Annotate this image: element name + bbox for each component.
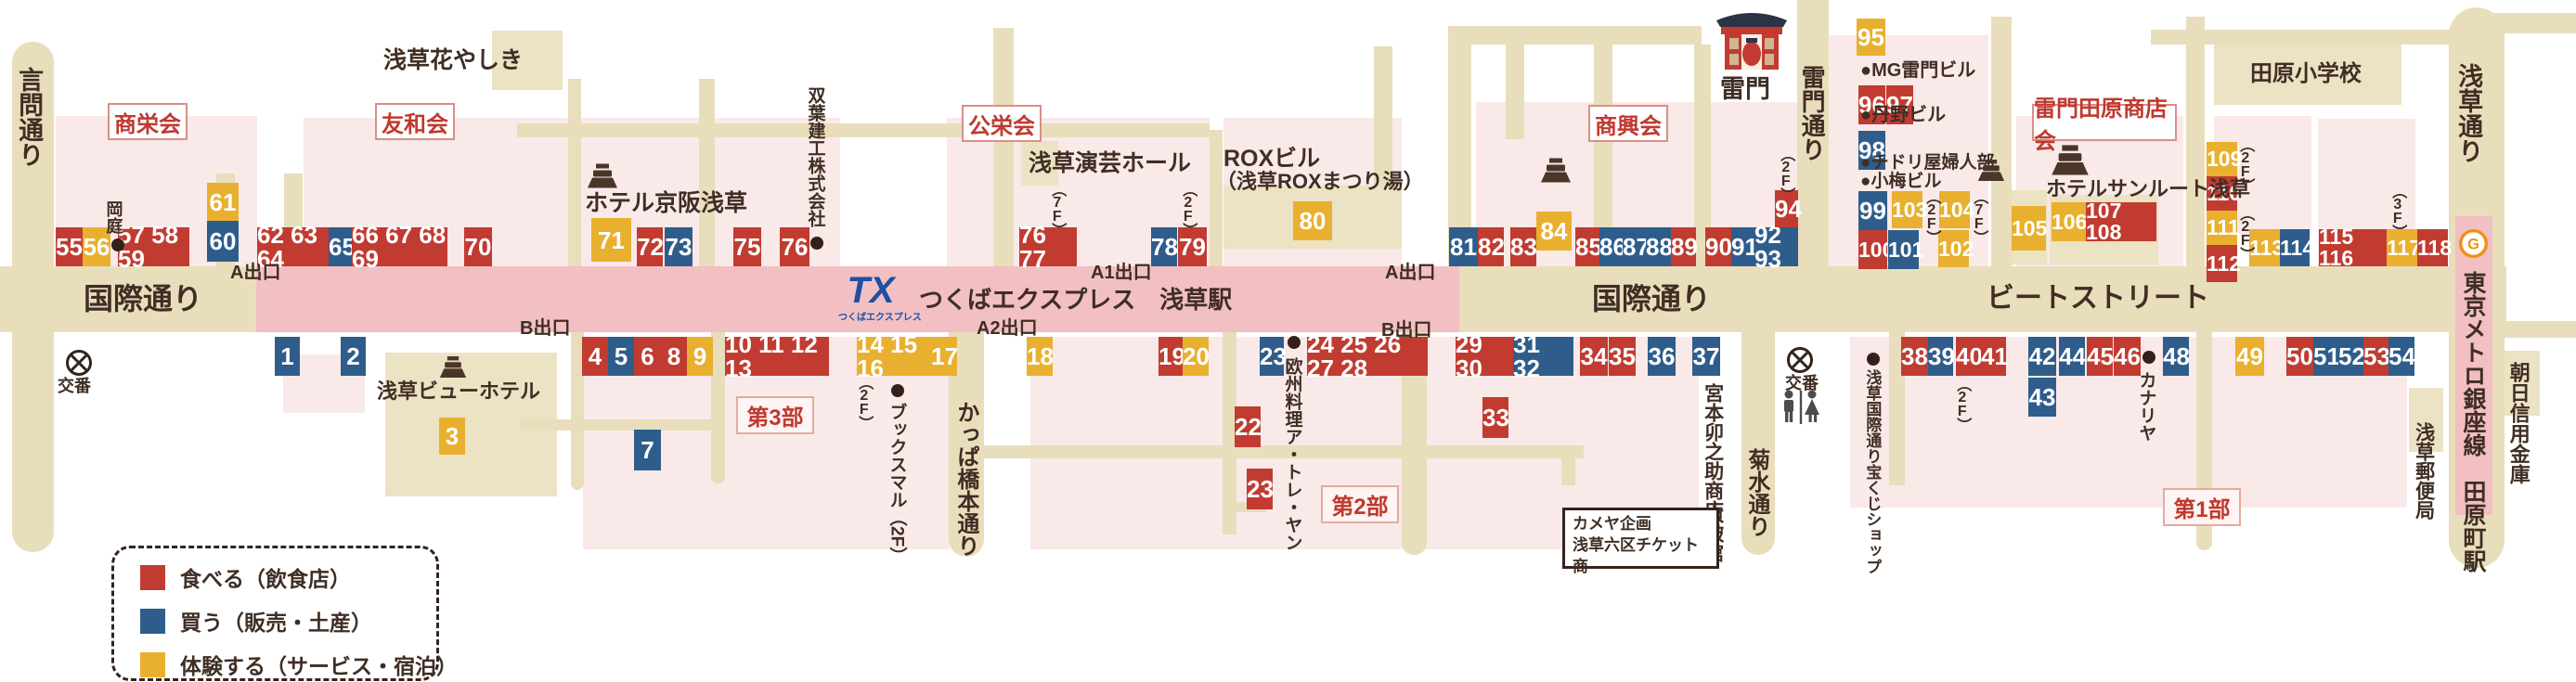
floor-note-7f: （7F） [1971, 189, 1987, 243]
legend-label-buy: 買う（販売・土産） [180, 605, 372, 637]
shop-number-chip: 83 [1510, 227, 1536, 266]
shop-number-chip: 99 [1858, 191, 1887, 230]
location-dot [891, 384, 904, 397]
shop-number-chip: 95 [1857, 19, 1885, 56]
shop-number-chip: 92 93 [1754, 227, 1798, 266]
floor-note-2f: （2F） [2237, 137, 2253, 191]
shop-number-chip: 61 [207, 183, 239, 221]
note-books-maru: ブックスマル（2F） [887, 403, 906, 564]
shop-number-chip: 55 [56, 227, 83, 266]
shop-number-chip: 1 [275, 337, 300, 376]
shop-number-chip: 48 [2163, 337, 2189, 376]
road [2497, 321, 2576, 338]
shop-number-chip: 109 [2207, 142, 2237, 176]
shop-number-chip: 101 [1888, 230, 1919, 269]
rox-building: ROXビル [1223, 147, 1320, 172]
shop-number-chip: 54 [2388, 337, 2414, 376]
road [699, 79, 715, 267]
location-dot [1288, 336, 1301, 349]
shop-number-chip: 114 [2280, 229, 2310, 266]
location-dot [2142, 351, 2155, 364]
road [2479, 13, 2576, 33]
shop-number-chip: 113 [2249, 229, 2280, 266]
floor-note-2f: （2F） [856, 375, 872, 429]
shop-number-chip: 33 [1482, 397, 1508, 438]
shop-number-chip: 52 [2338, 337, 2363, 376]
road [1210, 130, 1223, 267]
hotel-icon [1540, 158, 1572, 187]
asakusa-view-hotel: 浅草ビューホテル [377, 380, 540, 403]
restroom-icon [1780, 390, 1821, 431]
asahi-shinkin-bank: 朝日信用金庫 [2507, 362, 2530, 484]
location-dot [1867, 353, 1880, 366]
shop-number-chip: 75 [733, 227, 761, 266]
shop-number-chip: 36 [1648, 337, 1676, 376]
shop-number-chip: 3 [439, 418, 465, 455]
shop-number-chip: 41 [1981, 337, 2006, 376]
shop-number-chip: 37 [1692, 337, 1720, 376]
shop-number-chip: 42 [2028, 337, 2056, 376]
road [1561, 457, 1575, 485]
shop-number-chip: 7 [634, 430, 661, 470]
shop-number-chip: 29 30 [1456, 337, 1513, 376]
shop-number-chip: 31 32 [1513, 337, 1573, 376]
shop-number-chip: 111 [2207, 211, 2237, 245]
shop-number-chip: 102 [1938, 230, 1969, 267]
street-kototoi-dori: 言問通り [15, 67, 42, 167]
street-asakusa-dori: 浅草通り [2454, 63, 2481, 163]
exit-b-west: B出口 [520, 319, 570, 340]
exit-b-east: B出口 [1381, 321, 1431, 341]
shop-number-chip: 10 11 12 13 [725, 337, 829, 376]
shop-number-chip: 46 [2114, 337, 2141, 376]
exit-a-east: A出口 [1385, 264, 1435, 284]
road [2186, 17, 2205, 267]
shop-number-chip: 18 [1027, 337, 1053, 376]
legend: 食べる（飲食店） 買う（販売・土産） 体験する（サービス・宿泊） [111, 546, 439, 681]
shop-number-chip: 34 [1580, 337, 1608, 376]
exit-a2: A2出口 [977, 319, 1038, 340]
shop-number-chip: 62 63 64 [257, 227, 329, 266]
association-label: 商興会 [1588, 105, 1668, 142]
shop-number-chip: 38 [1901, 337, 1928, 376]
shop-number-chip: 87 [1623, 227, 1646, 266]
ginza-line-tawaramachi-station: 東京メトロ銀座線 田原町駅 [2460, 271, 2485, 573]
note-mg-kaminarimon-bldg: ●MG雷門ビル [1860, 61, 1975, 82]
shop-number-chip: 5 [608, 337, 634, 376]
association-label: 雷門田原商店会 [2032, 104, 2177, 141]
shop-number-chip: 23 [1260, 337, 1284, 376]
shop-number-chip: 57 58 59 [118, 227, 189, 266]
shop-number-chip: 76 [780, 227, 809, 266]
shop-number-chip: 107 108 [2086, 202, 2156, 241]
shop-number-chip: 105 [2012, 206, 2046, 251]
shop-number-chip: 53 [2363, 337, 2388, 376]
floor-note-7f: （7F） [1049, 182, 1065, 236]
koban-icon [1786, 346, 1814, 379]
legend-item-eat: 食べる（飲食店） [140, 561, 436, 593]
shop-number-chip: 40 [1956, 337, 1981, 376]
shop-number-chip: 84 [1536, 212, 1572, 251]
shop-number-chip: 73 [665, 227, 693, 266]
shop-number-chip: 51 [2313, 337, 2338, 376]
shop-number-chip: 22 [1235, 406, 1261, 447]
rox-matsuriyu: （浅草ROXまつり湯） [1216, 171, 1424, 193]
legend-item-buy: 買う（販売・土産） [140, 605, 436, 637]
tawara-elementary-school: 田原小学校 [2250, 62, 2362, 86]
road [517, 123, 1210, 137]
shop-number-chip: 85 [1575, 227, 1599, 266]
shop-number-chip: 80 [1293, 201, 1332, 240]
note-takarakuji-shop: 浅草国際通り宝くじショップ [1863, 369, 1880, 574]
note-tanno-bldg: ●丹野ビル [1860, 106, 1946, 126]
hotel-icon [1977, 160, 2005, 186]
asakusa-engei-hall: 浅草演芸ホール [1029, 151, 1191, 176]
road [568, 79, 581, 267]
legend-swatch-eat [140, 565, 165, 590]
road [520, 419, 724, 431]
legend-label-eat: 食べる（飲食店） [180, 561, 351, 593]
floor-note-2f: （2F） [1923, 189, 1939, 243]
association-label: 公栄会 [962, 105, 1042, 142]
kaminarimon-gate-icon [1714, 6, 1790, 79]
miyamoto-unosuke-shoten: 宮本卯之助商店 [1702, 383, 1723, 520]
shop-number-chip: 81 [1449, 227, 1478, 266]
shop-number-chip: 60 [207, 221, 239, 262]
shop-number-chip: 76 77 [1019, 227, 1077, 266]
shop-number-chip: 91 [1731, 227, 1754, 266]
shop-number-chip: 17 [931, 337, 957, 376]
hotel-keihan-asakusa: ホテル京阪浅草 [585, 191, 747, 216]
shop-number-chip: 20 [1183, 337, 1209, 376]
asakusa-hanayashiki: 浅草花やしき [383, 48, 523, 73]
shop-number-chip: 23 [1247, 469, 1273, 509]
note-okaniwa: 岡庭 [104, 200, 122, 234]
shop-number-chip: 24 25 26 27 28 [1307, 337, 1428, 376]
shop-number-chip: 2 [341, 337, 366, 376]
street-kokusai-dori-east: 国際通り [1592, 283, 1711, 315]
shop-number-chip: 4 [582, 337, 608, 376]
shop-number-chip: 89 [1671, 227, 1696, 266]
shop-number-chip: 35 [1609, 337, 1636, 376]
asakusa-shopping-street-map: 555657 58 59616062 63 646566 67 68 69707… [0, 0, 2576, 682]
association-label: 友和会 [375, 103, 455, 140]
street-kaminarimon-dori: 雷門通り [1799, 65, 1825, 161]
note-futaba-kenko: 双葉建工株式会社 [805, 86, 824, 227]
shop-number-chip: 50 [2286, 337, 2313, 376]
location-dot [111, 238, 124, 251]
location-dot [810, 237, 823, 250]
shop-number-chip: 45 [2087, 337, 2113, 376]
shop-number-chip: 19 [1159, 337, 1183, 376]
legend-swatch-buy [140, 609, 165, 634]
tsukuba-express-logo: TXつくばエクスプレス [838, 272, 903, 323]
street-kikusui-dori: 菊水通り [1744, 448, 1768, 537]
hotel-icon [2051, 145, 2090, 180]
shop-number-chip: 118 [2417, 229, 2448, 266]
asakusa-post-office: 浅草郵便局 [2413, 422, 2434, 520]
shop-number-chip: 9 [687, 337, 713, 376]
floor-note-3f: （3F） [2389, 184, 2405, 238]
shop-number-chip: 90 [1705, 227, 1731, 266]
road [1506, 26, 1524, 139]
road [2151, 30, 2457, 45]
shop-number-chip: 72 [637, 227, 663, 266]
shop-number-chip: 43 [2028, 378, 2056, 417]
shop-number-chip: 71 [591, 218, 631, 262]
street-beat-street: ビートストリート [1987, 284, 2209, 314]
floor-note-2f: （2F） [1180, 182, 1196, 236]
shop-number-chip: 106 [2052, 202, 2086, 241]
shop-number-chip: 112 [2207, 245, 2237, 282]
koban-icon [65, 349, 93, 381]
association-label: 商栄会 [108, 103, 188, 140]
ticket-shop-label: カメヤ企画浅草六区チケット商 [1562, 508, 1719, 569]
section-label: 第1部 [2163, 488, 2241, 526]
road [711, 332, 725, 483]
shop-number-chip: 8 [661, 337, 687, 376]
tx-asakusa-station: つくばエクスプレス 浅草駅 [919, 287, 1232, 313]
floor-note-2f: （2F） [2237, 206, 2253, 260]
legend-swatch-exp [140, 652, 165, 677]
shop-number-chip: 103 [1892, 191, 1922, 228]
shop-number-chip: 78 [1151, 227, 1177, 266]
note-a-tre-yan: 欧州料理ア・トレ・ヤン [1282, 357, 1301, 551]
shop-number-chip: 44 [2059, 337, 2085, 376]
road [1448, 26, 1702, 45]
kaminarimon-label: 雷門 [1720, 76, 1770, 103]
floor-note-2f: （2F） [1778, 147, 1793, 200]
section-label: 第2部 [1321, 485, 1399, 523]
shop-number-chip: 86 [1599, 227, 1623, 266]
street-kappabashi-hon-dori: かっぱ橋本通り [953, 401, 977, 557]
legend-label-exp: 体験する（サービス・宿泊） [180, 649, 458, 680]
exit-a1: A1出口 [1091, 264, 1152, 284]
exit-a-west: A出口 [230, 264, 280, 284]
road [1991, 17, 2012, 267]
shop-number-chip: 65 [329, 227, 352, 266]
shop-number-chip: 104 [1939, 191, 1970, 228]
svg-text:G: G [2467, 236, 2479, 252]
hotel-icon [587, 163, 618, 193]
ginza-line-g-icon: G [2458, 228, 2489, 264]
section-label: 第3部 [736, 396, 814, 434]
shop-number-chip: 115 116 [2319, 229, 2387, 266]
shop-number-chip: 6 [634, 337, 661, 376]
shop-number-chip: 100 [1858, 230, 1887, 269]
shop-number-chip: 88 [1646, 227, 1671, 266]
shop-number-chip: 49 [2235, 337, 2264, 376]
street-kokusai-dori-west: 国際通り [84, 283, 202, 315]
road [1374, 46, 1392, 186]
note-chidoriya-fujinbu: ●チドリ屋婦人部 [1860, 154, 1994, 174]
hotel-icon [439, 356, 467, 382]
shop-number-chip: 70 [464, 227, 492, 266]
floor-note-2f: （2F） [1954, 377, 1970, 431]
shop-number-chip: 14 15 16 [857, 337, 931, 376]
road [993, 28, 1014, 267]
hotel-sunroute-asakusa: ホテルサンルート浅草 [2046, 178, 2250, 200]
note-kanariya: カナリヤ [2136, 371, 2155, 442]
legend-item-exp: 体験する（サービス・宿泊） [140, 649, 436, 680]
shop-number-chip: 66 67 68 69 [352, 227, 447, 266]
shop-number-chip: 82 [1478, 227, 1504, 266]
shop-number-chip: 39 [1928, 337, 1953, 376]
